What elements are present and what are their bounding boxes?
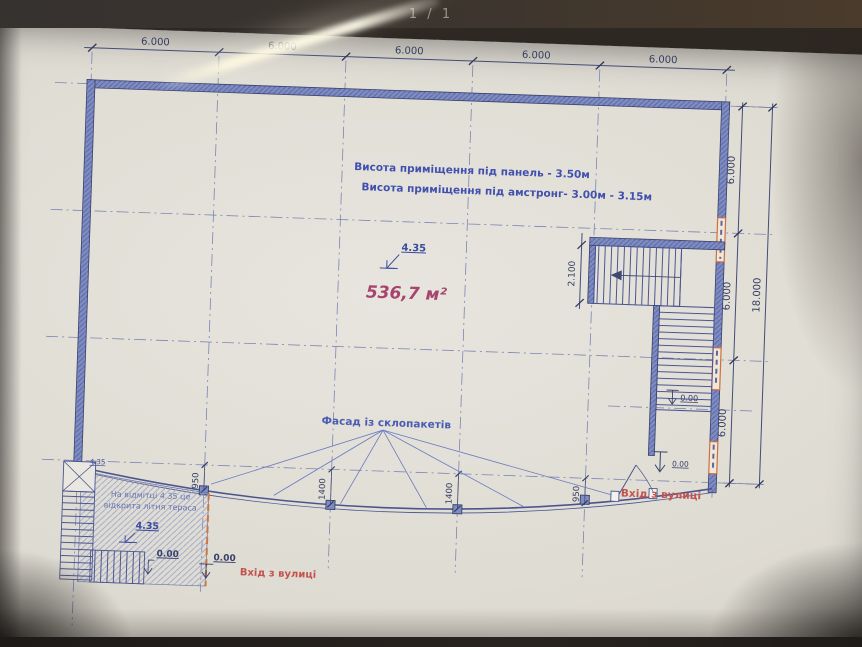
floor-plan-drawing: 6.000 6.000 6.000 6.000 6.000: [0, 24, 862, 647]
facade-label: Фасад із склопакетів: [321, 415, 451, 432]
dimension-chain-top: 6.000 6.000 6.000 6.000 6.000: [84, 34, 735, 74]
elevation-label: 0.00: [680, 393, 698, 403]
dimension-label: 2.100: [567, 260, 578, 286]
screen-bottom-bezel: [0, 637, 862, 647]
dimension-label: 6.000: [395, 45, 424, 57]
page-indicator: 1 / 1: [409, 7, 453, 22]
entrance-bottom: 0.00 Вхід з вулиці: [199, 553, 317, 582]
area-label: 536,7 м²: [366, 282, 448, 305]
entrance-label: Вхід з вулиці: [240, 567, 317, 581]
dimension-label: 950: [572, 486, 583, 503]
dimension-label: 1400: [445, 483, 456, 505]
terrace: На відмітці 4.35 це відкрита літня терас…: [60, 457, 210, 586]
dimension-label: 1400: [318, 478, 329, 500]
screen-photo: 6.000 6.000 6.000 6.000 6.000: [0, 0, 862, 647]
staircase-right: 2.100 0.00: [561, 233, 725, 458]
height-note-armstrong: Висота приміщення під амстронг- 3.00м - …: [361, 181, 652, 203]
elevation-label: 0.00: [672, 459, 689, 469]
elevation-label: 4.35: [90, 458, 106, 467]
dimension-label: 6.000: [141, 36, 170, 48]
entrance-door-right: 0.00 Вхід з вулиці: [611, 450, 703, 504]
dimension-label: 6.000: [649, 54, 678, 66]
elevation-label: 4.35: [135, 521, 159, 533]
height-note-panel: Висота приміщення під панель - 3.50м: [354, 161, 590, 181]
dimension-label: 6.000: [268, 41, 297, 53]
elevation-label: 4.35: [401, 243, 426, 255]
dimension-label: 950: [191, 472, 202, 489]
pdf-viewer-toolbar: 1 / 1: [0, 0, 862, 28]
dimension-label: 18.000: [751, 277, 763, 312]
elevation-label: 0.00: [156, 549, 179, 560]
elevation-label: 0.00: [213, 553, 236, 564]
entrance-label: Вхід з вулиці: [621, 487, 702, 502]
document-page[interactable]: 6.000 6.000 6.000 6.000 6.000: [0, 24, 862, 647]
dimension-label: 6.000: [522, 50, 551, 62]
